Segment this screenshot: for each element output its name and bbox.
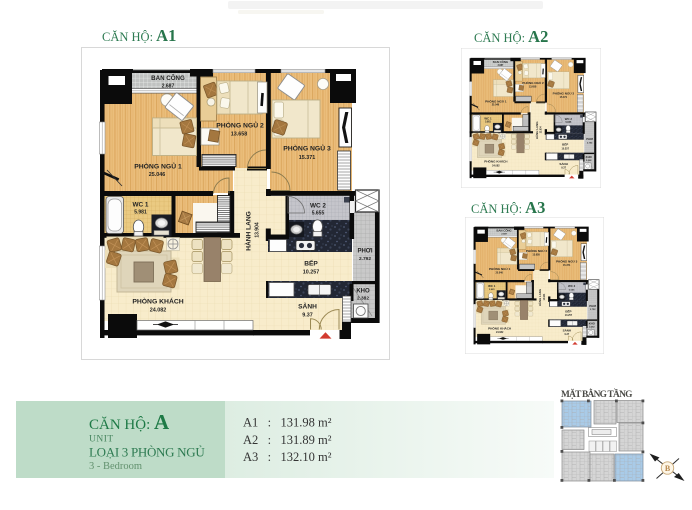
svg-text:CĂN HỘ: A2: CĂN HỘ: A2 — [474, 27, 548, 46]
svg-text:A2 : 131.89 m²: A2 : 131.89 m² — [243, 433, 332, 447]
svg-text:B: B — [665, 464, 671, 473]
svg-text:CĂN HỘ: A3: CĂN HỘ: A3 — [471, 198, 545, 217]
svg-text:CĂN HỘ: A1: CĂN HỘ: A1 — [102, 26, 176, 45]
svg-text:UNIT: UNIT — [89, 435, 114, 445]
svg-text:MẶT BẰNG TẦNG: MẶT BẰNG TẦNG — [561, 387, 633, 400]
svg-text:3 - Bedroom: 3 - Bedroom — [89, 461, 142, 472]
svg-text:A3 : 132.10 m²: A3 : 132.10 m² — [243, 450, 332, 464]
svg-text:LOẠI 3 PHÒNG NGỦ: LOẠI 3 PHÒNG NGỦ — [89, 445, 205, 460]
svg-text:A1 : 131.98 m²: A1 : 131.98 m² — [243, 416, 332, 430]
